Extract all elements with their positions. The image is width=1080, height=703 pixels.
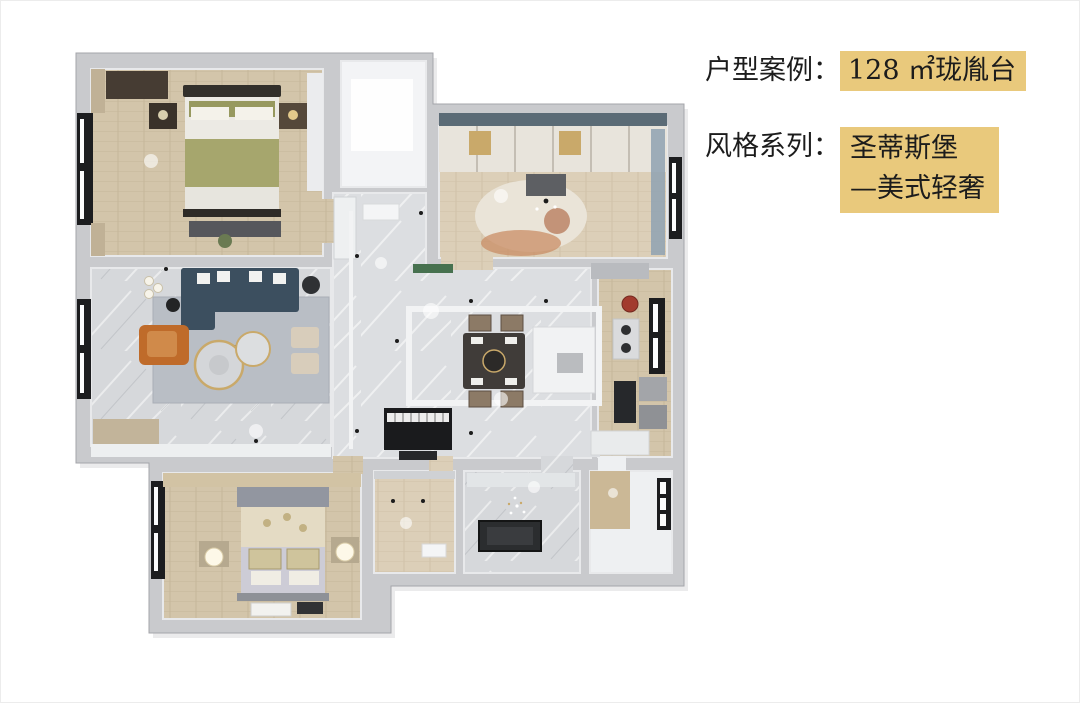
vanity-counter xyxy=(467,473,575,487)
case-label: 户型案例： xyxy=(705,51,840,91)
wall-panel xyxy=(374,471,455,479)
coffee-table xyxy=(236,332,270,366)
bed-platform xyxy=(237,593,329,601)
shutter-panel xyxy=(91,69,105,113)
oven-tower xyxy=(614,381,636,423)
ottoman xyxy=(291,327,319,348)
green-blanket xyxy=(185,139,279,187)
lazy-susan xyxy=(483,350,505,372)
master-window xyxy=(77,113,93,225)
base-cabinet xyxy=(639,405,667,429)
floor-tray xyxy=(422,544,446,557)
cabinet-top-strip xyxy=(439,113,667,126)
bathroom-door xyxy=(541,456,573,473)
dining-chair xyxy=(469,315,491,331)
pillow xyxy=(249,271,262,282)
second-bedroom-door xyxy=(333,456,363,474)
pillow xyxy=(251,571,281,585)
light-bloom xyxy=(351,79,413,151)
plaid-pillow xyxy=(287,549,319,569)
lace-pillow xyxy=(235,107,273,120)
closet-column xyxy=(307,73,323,191)
chandelier xyxy=(544,199,549,204)
round-lamp xyxy=(336,543,354,561)
burner xyxy=(621,343,631,353)
bed-bench xyxy=(189,221,281,237)
burner xyxy=(621,325,631,335)
wardrobe xyxy=(106,71,168,99)
plaid-pillow xyxy=(249,549,281,569)
round-lamp xyxy=(205,548,223,566)
style-label: 风格系列： xyxy=(705,127,840,167)
ottoman xyxy=(291,353,319,374)
dining-chair xyxy=(469,391,491,407)
wall-decor xyxy=(622,296,638,312)
master-bed xyxy=(183,85,281,217)
piano-keys xyxy=(387,413,449,422)
case-value-highlight: 128 ㎡珑胤台 xyxy=(840,51,1026,91)
canopy-drape xyxy=(163,473,361,487)
plant xyxy=(218,234,232,248)
desk xyxy=(526,174,566,196)
dining-chair xyxy=(501,315,523,331)
gold-cabinet xyxy=(469,131,491,155)
footboard xyxy=(183,209,281,217)
island-sink xyxy=(557,353,583,373)
curtain xyxy=(651,129,665,255)
shutter-bench xyxy=(93,419,159,445)
headboard xyxy=(183,85,281,97)
upper-cabinet xyxy=(591,263,649,279)
style-value-highlight: 圣蒂斯堡 —美式轻奢 xyxy=(840,127,999,213)
shutter-panel xyxy=(91,223,105,256)
gold-cabinet xyxy=(559,131,581,155)
ac-vent xyxy=(363,204,399,220)
utility-balcony-door xyxy=(598,456,626,473)
second-bed xyxy=(237,487,329,601)
case-line: 户型案例： 128 ㎡珑胤台 xyxy=(705,51,1026,91)
accent-rug xyxy=(481,230,561,256)
table-lamp xyxy=(288,110,298,120)
dark-mat xyxy=(297,602,323,614)
pillow xyxy=(273,273,286,284)
floor-mat xyxy=(251,603,291,616)
master-bedroom-door xyxy=(321,199,335,243)
window-sill xyxy=(91,444,331,457)
style-line: 风格系列： 圣蒂斯堡 —美式轻奢 xyxy=(705,127,1026,213)
side-table xyxy=(302,276,320,294)
display-niche xyxy=(413,264,453,273)
accent-table xyxy=(166,298,180,312)
table-lamp xyxy=(158,110,168,120)
lace-pillow xyxy=(191,107,229,120)
pillow xyxy=(289,571,319,585)
real-estate-poster: 户型案例： 128 ㎡珑胤台 风格系列： 圣蒂斯堡 —美式轻奢 xyxy=(0,0,1080,703)
base-cabinet xyxy=(639,377,667,401)
wood-accent-wall xyxy=(590,471,630,529)
headboard xyxy=(237,487,329,507)
cloakroom-floor xyxy=(374,471,455,573)
pillow xyxy=(197,273,210,284)
bright-bathroom xyxy=(351,79,413,151)
desk-chair xyxy=(544,208,570,234)
counter xyxy=(591,431,649,455)
piano-bench xyxy=(399,451,437,460)
style-series-subtitle: —美式轻奢 xyxy=(850,169,985,209)
info-panel: 户型案例： 128 ㎡珑胤台 风格系列： 圣蒂斯堡 —美式轻奢 xyxy=(705,51,1026,249)
cream-throw xyxy=(241,507,325,547)
style-series-name: 圣蒂斯堡 xyxy=(850,129,985,169)
pillow xyxy=(217,271,230,282)
